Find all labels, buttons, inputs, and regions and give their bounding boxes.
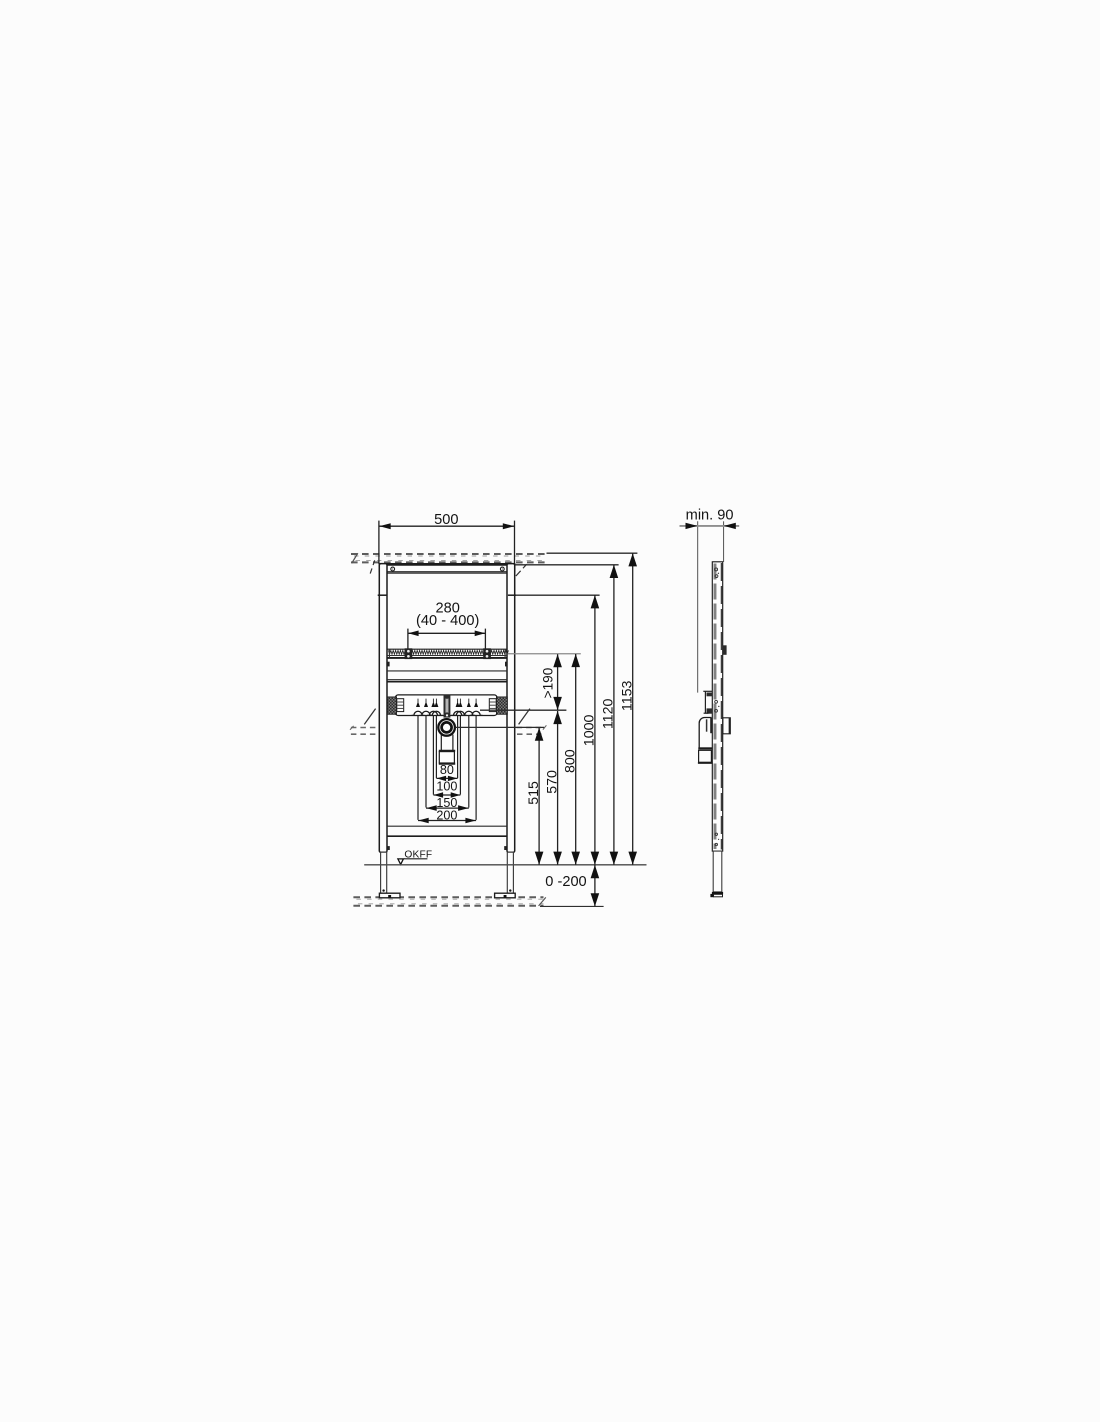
svg-text:570: 570	[544, 770, 560, 794]
svg-text:min. 90: min. 90	[686, 507, 734, 523]
svg-text:515: 515	[526, 781, 542, 805]
svg-text:800: 800	[563, 749, 579, 773]
svg-text:80: 80	[440, 763, 454, 777]
svg-text:>190: >190	[540, 667, 555, 698]
svg-text:1153: 1153	[620, 680, 636, 711]
svg-text:1120: 1120	[601, 699, 617, 730]
svg-text:100: 100	[436, 780, 457, 794]
svg-text:0 -200: 0 -200	[545, 874, 586, 890]
svg-text:1000: 1000	[582, 715, 598, 747]
svg-text:(40 - 400): (40 - 400)	[416, 613, 479, 629]
svg-text:500: 500	[434, 512, 458, 528]
